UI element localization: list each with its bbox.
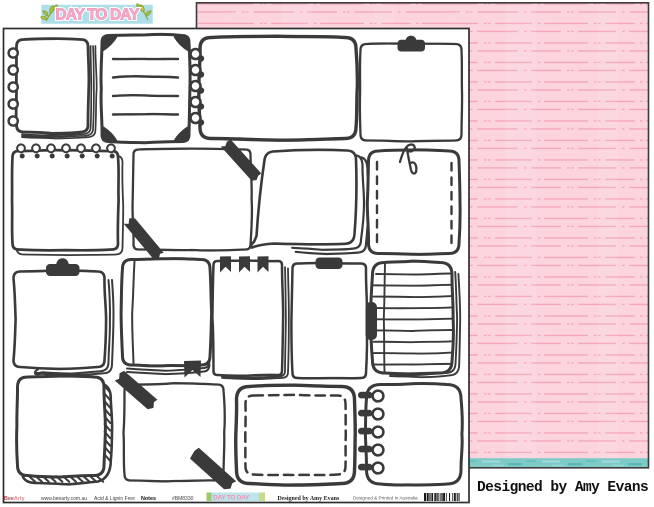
svg-text:Acid & Lignin Free: Acid & Lignin Free <box>94 496 135 502</box>
svg-text:DAY TO DAY: DAY TO DAY <box>55 7 140 24</box>
svg-text:DAY TO DAY: DAY TO DAY <box>213 495 250 502</box>
svg-text:Designed by Amy Evans: Designed by Amy Evans <box>278 496 341 502</box>
svg-text:BeeArty: BeeArty <box>4 496 25 502</box>
svg-text:#BM8330: #BM8330 <box>172 496 194 502</box>
svg-text:Notes: Notes <box>141 496 156 502</box>
svg-text:Designed & Printed in Australi: Designed & Printed in Australia <box>353 496 418 501</box>
svg-text:www.beearty.com.au: www.beearty.com.au <box>41 496 87 502</box>
svg-text:Designed by Amy Evans: Designed by Amy Evans <box>477 480 648 496</box>
